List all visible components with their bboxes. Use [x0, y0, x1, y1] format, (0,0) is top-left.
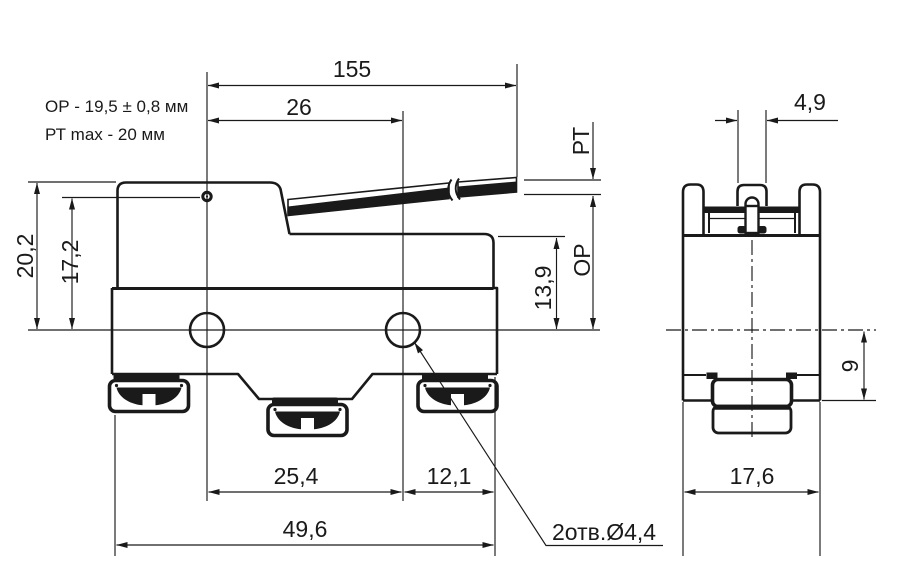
dim-height-pivot: 17,2: [57, 240, 83, 285]
technical-drawing-canvas: 155 26 20,2 17,2 РТ ОР 13,9: [0, 0, 900, 588]
dim-pt-label: РТ: [568, 127, 594, 155]
dim-center-to-bottom: 9: [837, 360, 863, 373]
dim-hole-spacing: 25,4: [274, 463, 319, 489]
dim-lever-total: 155: [333, 56, 371, 82]
dim-body-depth: 17,6: [730, 463, 775, 489]
side-view: 4,9 9 17,6: [666, 89, 876, 556]
spec-notes: ОР - 19,5 ± 0,8 мм РТ max - 20 мм: [45, 97, 188, 144]
holes-note: 2отв.Ø4,4: [552, 519, 656, 545]
lever-arm: [288, 178, 517, 216]
front-terminals: [110, 374, 498, 436]
dim-hole-to-edge: 12,1: [427, 463, 472, 489]
dim-body-width: 49,6: [283, 516, 328, 542]
dim-pivot-to-hole: 26: [286, 94, 312, 120]
note-op: ОР - 19,5 ± 0,8 мм: [45, 97, 188, 116]
side-dimensions: 4,9 9 17,6: [683, 89, 876, 556]
dim-top-to-center: 13,9: [530, 266, 556, 311]
dim-plunger-width: 4,9: [794, 89, 826, 115]
dim-height-total: 20,2: [12, 234, 38, 279]
note-pt: РТ max - 20 мм: [45, 125, 165, 144]
front-body-outline: [112, 183, 497, 400]
dim-op-label: ОР: [569, 243, 595, 276]
drawing-svg: 155 26 20,2 17,2 РТ ОР 13,9: [0, 0, 900, 588]
